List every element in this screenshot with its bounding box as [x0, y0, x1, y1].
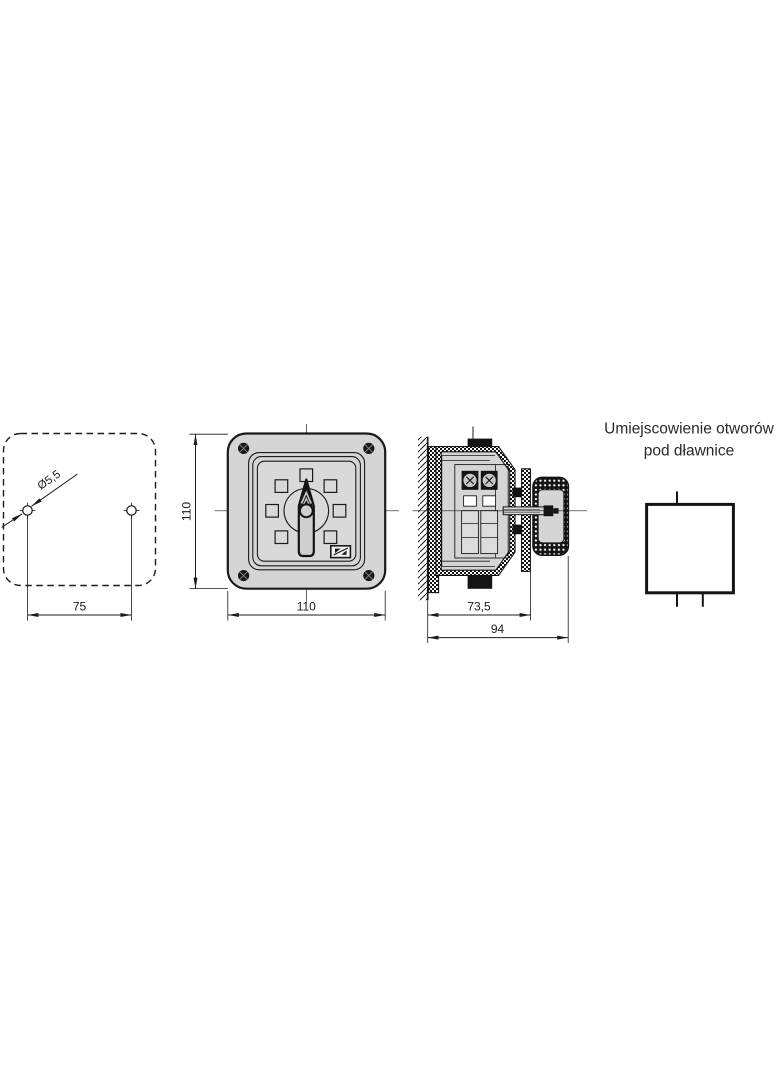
position-marker — [266, 505, 279, 518]
gland-holes-view: Umiejscowienie otworów pod dławnice — [604, 421, 775, 607]
wall-hatch — [418, 437, 428, 601]
corner-screw — [238, 570, 249, 581]
corner-screw — [238, 443, 249, 454]
position-marker — [333, 505, 346, 518]
total-depth-dimension: 94 — [491, 622, 505, 636]
gland-title-line1: Umiejscowienie otworów — [604, 421, 775, 438]
position-marker — [324, 531, 337, 544]
mounting-hole-right — [124, 503, 140, 519]
hole-diameter-label: Ø5,5 — [36, 468, 63, 492]
mounting-holes-view: Ø5,5 75 — [2, 434, 156, 621]
position-marker — [275, 531, 288, 544]
gland-box-outline — [647, 504, 734, 592]
mounting-depth-dimension: 73,5 — [467, 600, 491, 614]
position-marker — [324, 480, 337, 493]
corner-screw — [363, 570, 374, 581]
terminal-screw — [463, 473, 478, 488]
section-view: 73,5 94 — [413, 427, 588, 644]
front-view: 110 110 — [180, 424, 400, 621]
front-height-dimension: 110 — [180, 502, 194, 521]
gland-title-line2: pod dławnice — [644, 443, 734, 460]
front-width-dimension: 110 — [297, 600, 316, 614]
terminal-screw — [482, 473, 497, 488]
technical-drawing-page: Ø5,5 75 — [0, 0, 784, 1066]
position-marker — [275, 480, 288, 493]
hole-spacing-dimension: 75 — [73, 600, 87, 614]
front-plate-section — [522, 469, 531, 572]
knob-section — [533, 477, 568, 555]
corner-screw — [363, 443, 374, 454]
technical-drawing: Ø5,5 75 — [0, 0, 784, 1066]
manufacturer-logo-icon — [331, 546, 351, 558]
